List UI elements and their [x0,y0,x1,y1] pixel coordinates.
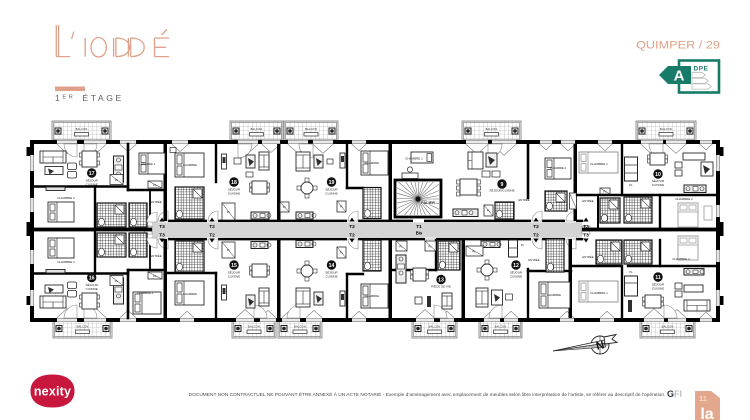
svg-text:FI: FI [674,389,682,399]
svg-text:CHAMBRE 1: CHAMBRE 1 [590,291,608,295]
svg-text:CHAMBRE: CHAMBRE [547,293,561,297]
svg-text:13: 13 [438,277,444,283]
svg-text:CUISINE: CUISINE [325,275,337,279]
svg-text:PL: PL [283,205,287,209]
svg-text:BALCON: BALCON [305,127,317,131]
svg-text:CUISINE: CUISINE [652,287,664,291]
svg-text:ENTRÉE: ENTRÉE [150,199,161,204]
svg-text:BALCON: BALCON [76,127,88,131]
svg-text:T2: T2 [349,224,355,230]
svg-text:la: la [700,406,713,420]
svg-text:G: G [667,389,674,399]
svg-text:14: 14 [329,263,335,269]
svg-text:12: 12 [513,263,519,269]
svg-text:CHAMBRE 2: CHAMBRE 2 [672,257,690,261]
svg-text:PL: PL [227,248,231,252]
svg-text:CUISINE: CUISINE [652,183,664,187]
svg-text:PL: PL [472,250,476,254]
svg-text:PL: PL [629,183,633,187]
svg-text:17: 17 [89,171,95,177]
svg-text:BALCON: BALCON [77,325,89,329]
svg-text:PL: PL [227,210,231,214]
svg-text:10: 10 [655,172,661,178]
svg-text:CUISINE: CUISINE [228,192,240,196]
svg-text:CHAMBRE 1: CHAMBRE 1 [590,162,608,166]
svg-text:T3: T3 [159,224,165,230]
svg-text:ENTRÉE: ENTRÉE [528,257,539,262]
svg-text:16: 16 [89,275,95,281]
svg-text:PL: PL [115,279,119,283]
svg-text:T3: T3 [583,233,589,239]
svg-text:nexity: nexity [34,385,71,399]
svg-text:T2: T2 [349,233,355,239]
svg-text:CHAMBRE 2: CHAMBRE 2 [57,196,75,200]
svg-text:CUISINE: CUISINE [228,275,240,279]
svg-text:ENTRÉE: ENTRÉE [150,253,161,258]
svg-text:CHAMBRE 2: CHAMBRE 2 [550,166,567,170]
svg-text:CUISINE: CUISINE [325,192,337,196]
svg-text:CHAMBRE 2: CHAMBRE 2 [57,260,75,264]
svg-text:CUISINE: CUISINE [86,183,98,187]
svg-text:CHAMBRE: CHAMBRE [365,294,379,298]
svg-text:CHAMBRE 2: CHAMBRE 2 [675,197,693,201]
svg-text:15: 15 [231,263,237,269]
svg-text:11: 11 [699,394,707,403]
svg-text:BALCON: BALCON [429,325,441,329]
svg-text:T2: T2 [209,224,215,230]
svg-text:PL: PL [340,205,344,209]
svg-text:ENTRÉE: ENTRÉE [518,197,529,202]
svg-text:QUIMPER / 29: QUIMPER / 29 [636,40,720,52]
svg-text:CUISINE: CUISINE [510,275,522,279]
svg-text:DPE: DPE [694,66,709,73]
svg-text:PL: PL [603,190,607,194]
svg-text:CHAMBRE: CHAMBRE [183,292,197,296]
svg-text:PL: PL [153,183,157,187]
svg-text:PL: PL [340,251,344,255]
svg-text:BALCON: BALCON [662,325,674,329]
svg-text:ENTRÉE: ENTRÉE [582,198,593,203]
svg-text:BALCON: BALCON [486,127,498,131]
svg-text:BALCON: BALCON [251,127,263,131]
svg-text:T2: T2 [533,224,539,230]
svg-text:ENTRÉE: ENTRÉE [582,254,593,259]
svg-text:CHAMBRE: CHAMBRE [183,163,197,167]
svg-text:PL: PL [521,243,525,247]
svg-text:T2: T2 [209,233,215,239]
svg-text:PL: PL [399,245,403,249]
svg-text:T3: T3 [159,233,165,239]
svg-text:BALCON: BALCON [495,325,507,329]
svg-text:T1: T1 [416,224,422,230]
svg-text:9: 9 [501,182,504,188]
svg-text:BALCON: BALCON [660,127,672,131]
svg-text:CHAMBRE 1: CHAMBRE 1 [139,162,156,166]
svg-text:PL: PL [629,270,633,274]
svg-text:PL: PL [153,274,157,278]
svg-text:PL: PL [487,209,491,213]
svg-text:T3: T3 [583,224,589,230]
svg-text:CHAMBRE 1: CHAMBRE 1 [137,291,154,295]
svg-text:CHAMBRE 1: CHAMBRE 1 [405,157,423,161]
svg-text:BALCON: BALCON [294,325,306,329]
svg-text:Bis: Bis [416,231,423,236]
svg-text:18: 18 [231,180,237,186]
svg-text:CUISINE: CUISINE [86,287,98,291]
svg-text:BALCON: BALCON [248,325,260,329]
svg-text:PL: PL [428,245,432,249]
svg-text:CHAMBRE: CHAMBRE [365,161,379,165]
svg-text:PL: PL [115,178,119,182]
svg-text:PIÈCE DE VIE: PIÈCE DE VIE [431,284,451,289]
svg-text:19: 19 [329,180,335,186]
svg-text:PALIER: PALIER [421,201,435,205]
svg-text:T2: T2 [533,233,539,239]
svg-text:11: 11 [655,275,661,281]
svg-text:SÉJOUR/CUISINE: SÉJOUR/CUISINE [489,188,514,193]
svg-text:A: A [674,68,685,85]
